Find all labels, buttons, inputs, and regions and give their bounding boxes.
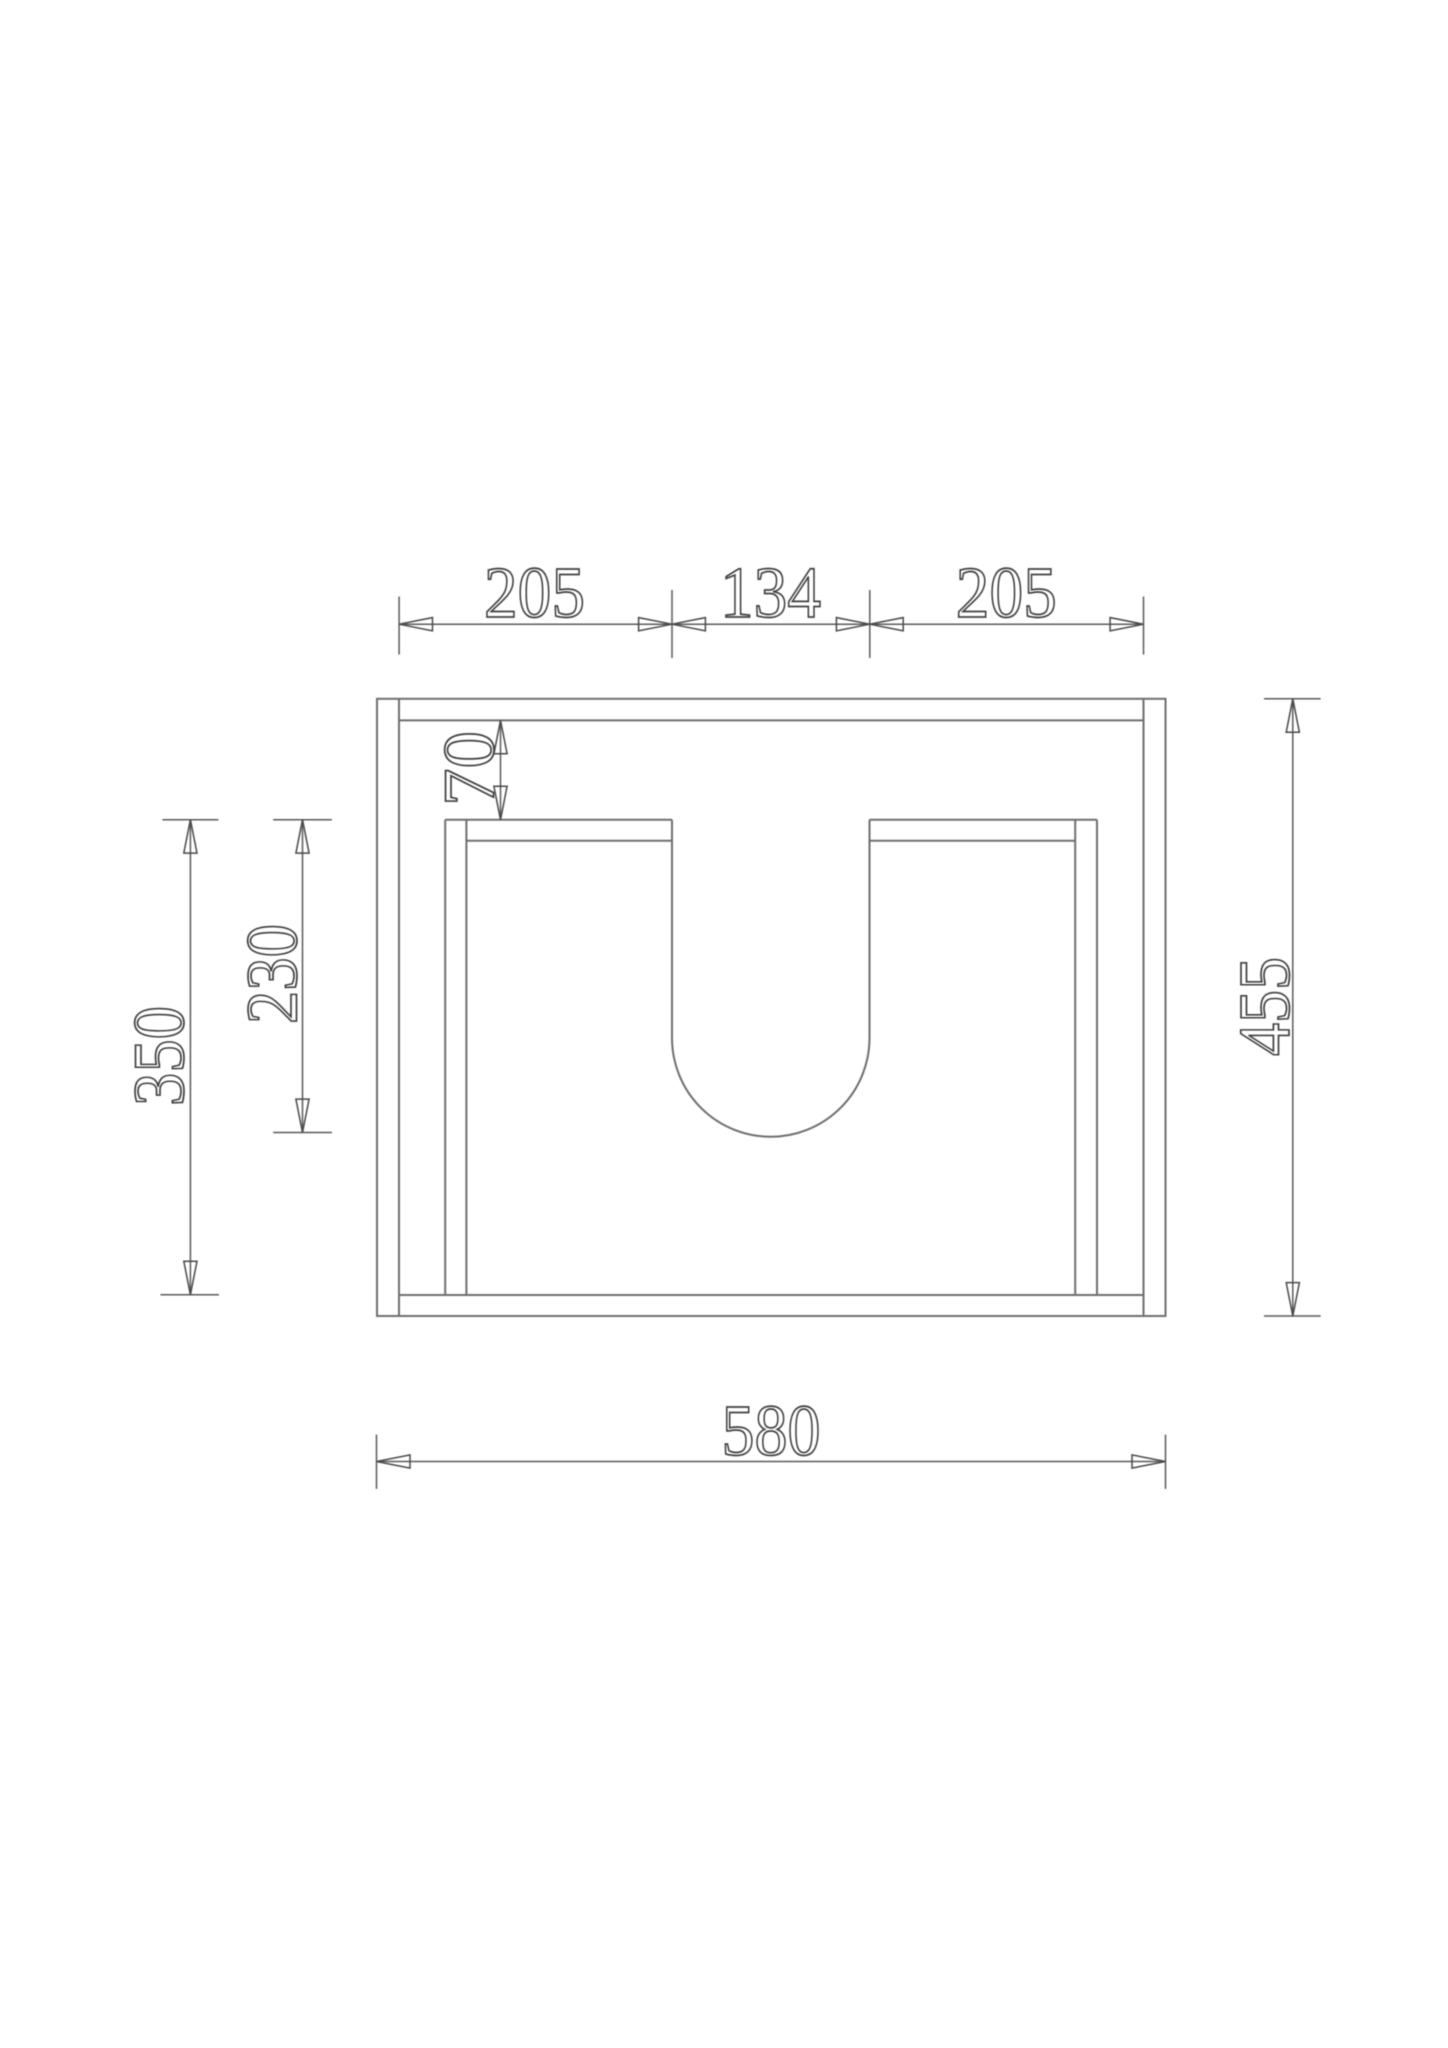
svg-text:230: 230: [232, 924, 313, 1024]
svg-text:455: 455: [1224, 957, 1305, 1056]
svg-text:350: 350: [119, 1006, 200, 1106]
svg-text:134: 134: [720, 552, 821, 633]
svg-text:580: 580: [722, 1390, 821, 1471]
svg-text:205: 205: [956, 552, 1057, 633]
svg-text:70: 70: [429, 731, 510, 806]
svg-text:205: 205: [484, 552, 585, 633]
